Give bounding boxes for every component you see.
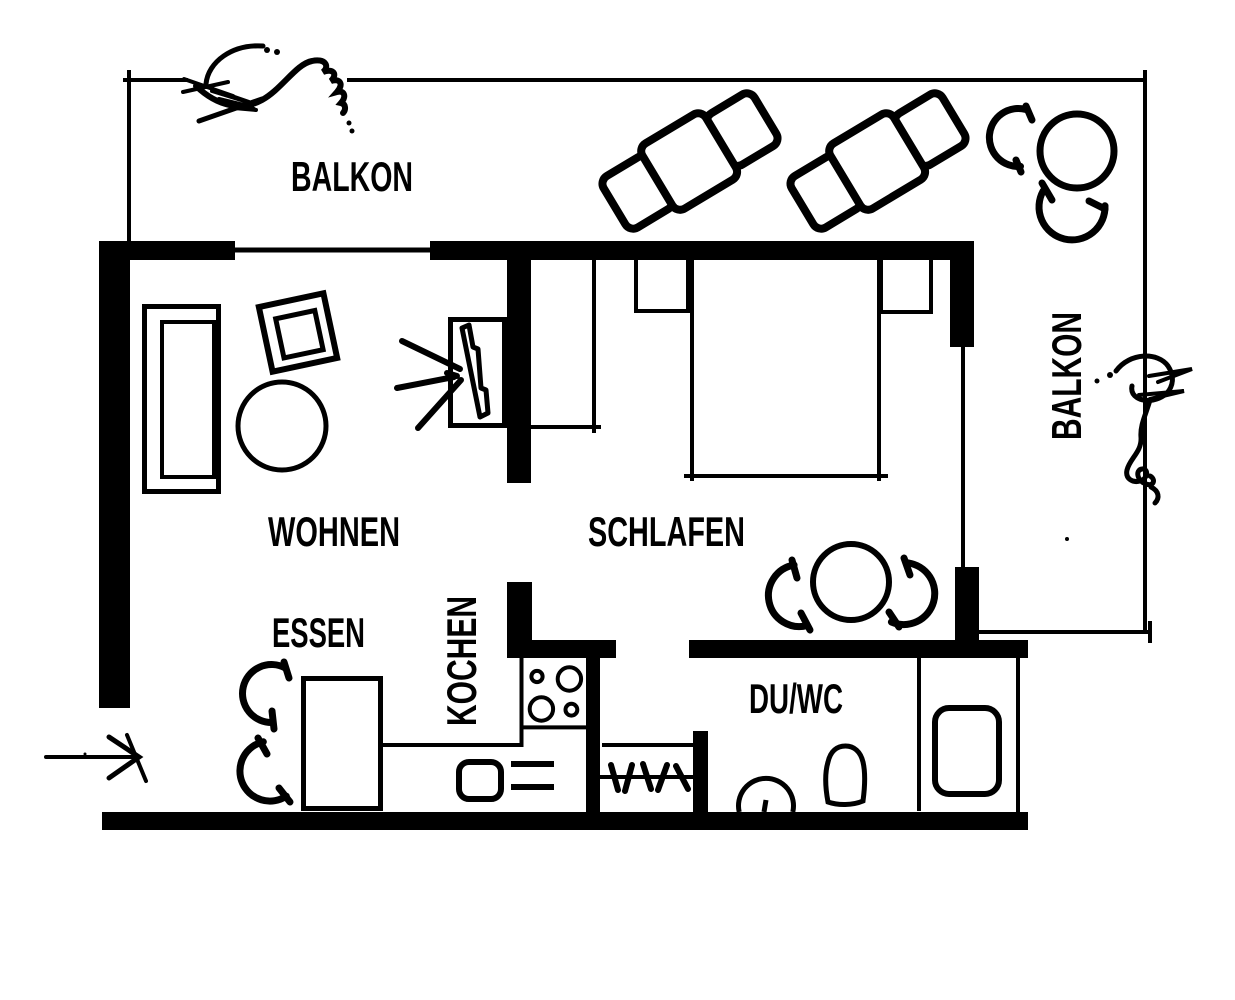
svg-text:BALKON: BALKON xyxy=(1043,312,1090,440)
svg-text:SCHLAFEN: SCHLAFEN xyxy=(588,508,745,555)
svg-text:WOHNEN: WOHNEN xyxy=(268,508,400,555)
svg-text:KOCHEN: KOCHEN xyxy=(438,596,485,726)
svg-text:ESSEN: ESSEN xyxy=(272,609,365,656)
svg-text:BALKON: BALKON xyxy=(291,153,413,200)
svg-text:DU/WC: DU/WC xyxy=(749,675,843,722)
